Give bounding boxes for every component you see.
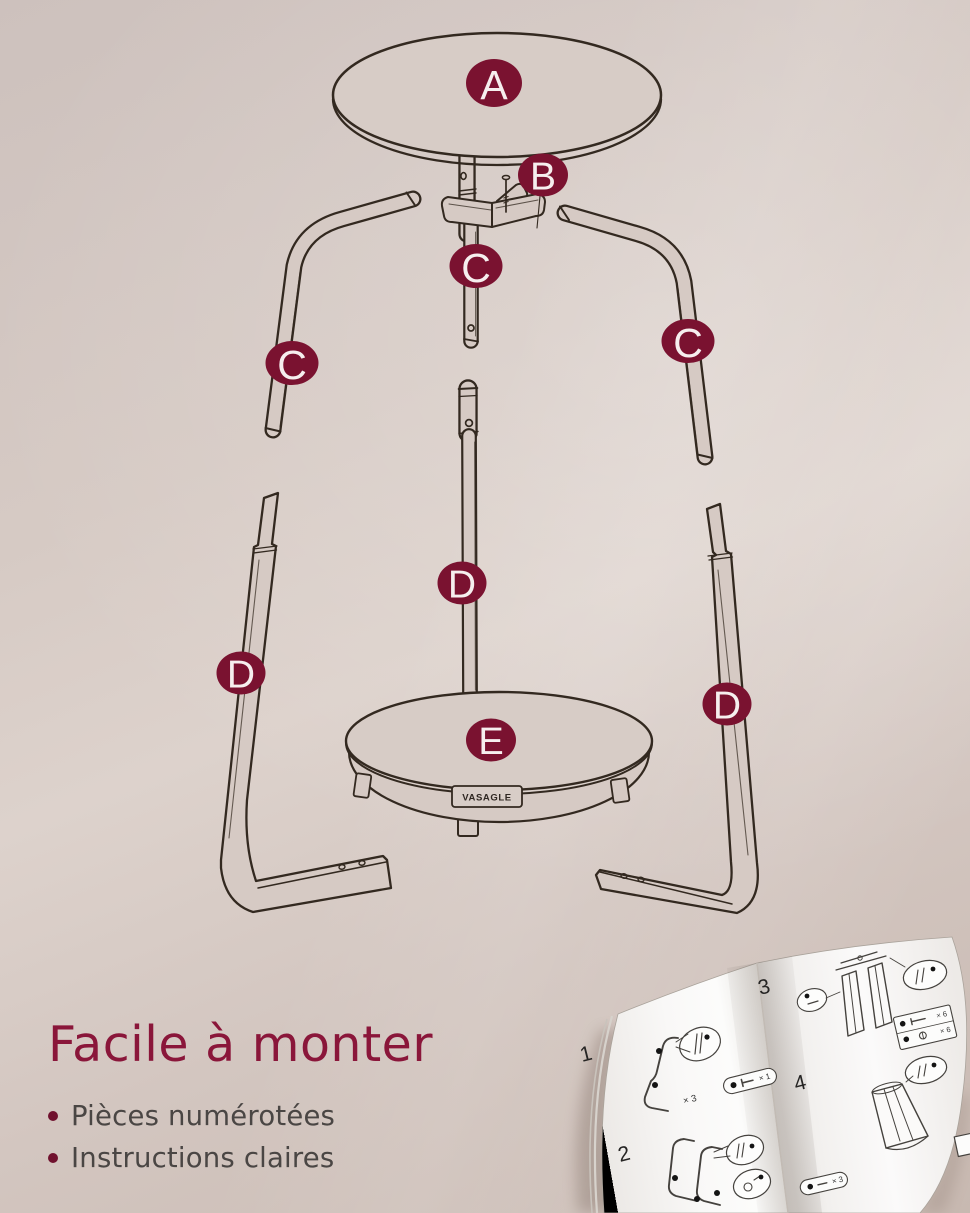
badge-letter: D (227, 654, 255, 697)
badge-letter: E (478, 721, 503, 763)
step-number: 1 (578, 1042, 595, 1067)
badge-letter: D (448, 564, 476, 607)
product-infographic: VASAGLE A B C C C D D (0, 0, 970, 1213)
bullet-item: Pièces numérotées (48, 1095, 433, 1137)
caption-block: Facile à monter Pièces numérotées Instru… (48, 1016, 433, 1179)
bullet-item: Instructions claires (48, 1137, 433, 1179)
badge-letter: C (277, 342, 307, 388)
badge-letter: B (530, 156, 556, 199)
badge-letter: A (480, 62, 508, 108)
leg-upper-left (266, 193, 416, 432)
feature-bullets: Pièces numérotées Instructions claires (48, 1095, 433, 1179)
exploded-table-diagram: VASAGLE A B C C C D D (217, 33, 758, 913)
badge-letter: D (713, 685, 741, 728)
leg-lower-center (459, 388, 478, 694)
shelf-cleat-left (353, 773, 371, 798)
instruction-manual: 1 × 3 × 1 2 (576, 937, 970, 1213)
badge-C-center: C (450, 244, 503, 291)
badge-letter: C (673, 320, 703, 366)
brand-logo-text: VASAGLE (462, 793, 511, 804)
badge-D-center: D (438, 562, 487, 607)
badge-letter: C (461, 245, 491, 291)
shelf-part: VASAGLE (346, 692, 652, 836)
bullet-text: Pièces numérotées (71, 1100, 335, 1132)
bullet-text: Instructions claires (71, 1142, 334, 1174)
leg-lower-left (221, 493, 391, 912)
bullet-dot-icon (48, 1153, 58, 1163)
bullet-dot-icon (48, 1111, 58, 1121)
badge-C-right: C (662, 319, 715, 366)
shelf-cleat-right (611, 778, 630, 803)
headline-title: Facile à monter (48, 1016, 433, 1073)
brand-plate: VASAGLE (452, 786, 522, 807)
